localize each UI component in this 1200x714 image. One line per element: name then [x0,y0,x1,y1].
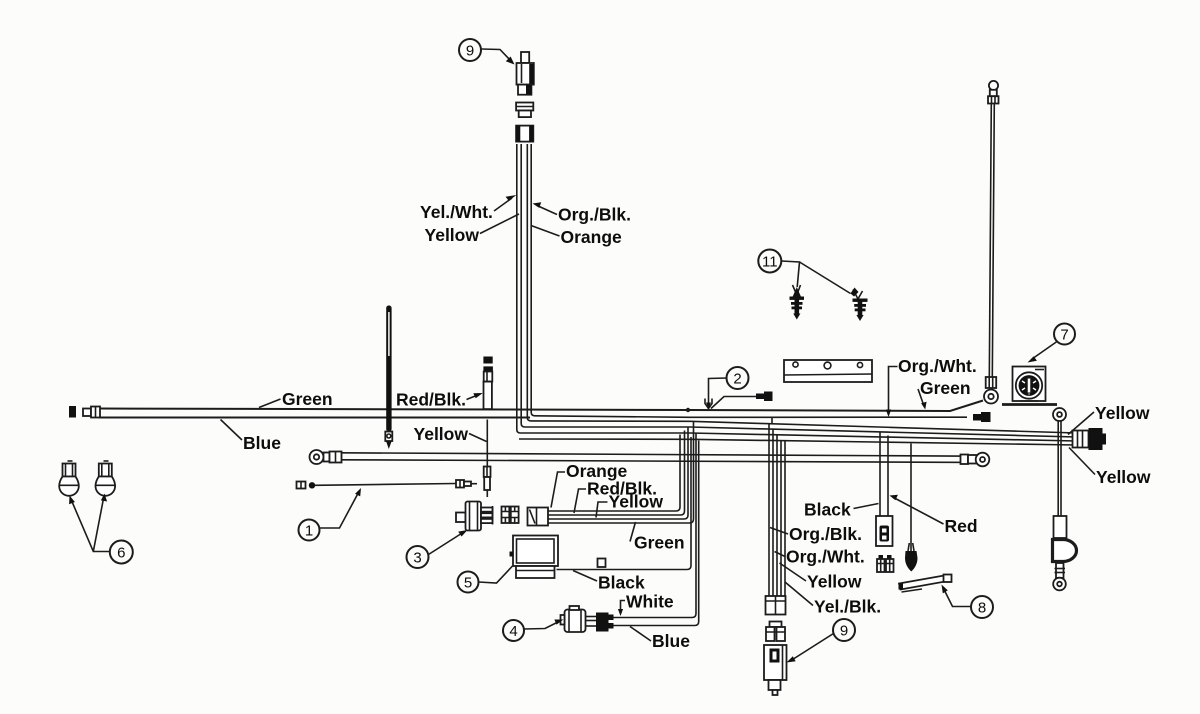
svg-text:Blue: Blue [243,433,281,453]
svg-text:Org./Blk.: Org./Blk. [558,205,631,225]
svg-text:3: 3 [413,550,421,567]
svg-text:6: 6 [117,545,125,562]
svg-text:8: 8 [978,600,986,617]
svg-text:Yellow: Yellow [1096,467,1151,487]
svg-text:Black: Black [598,573,645,593]
svg-text:Yellow: Yellow [807,572,862,592]
svg-text:4: 4 [509,623,517,640]
svg-text:Red: Red [945,516,978,536]
svg-text:11: 11 [762,254,778,271]
svg-text:9: 9 [840,623,848,640]
svg-text:Black: Black [804,500,851,520]
svg-text:Org./Wht.: Org./Wht. [786,547,865,567]
svg-text:7: 7 [1060,327,1068,344]
svg-text:9: 9 [466,43,474,60]
svg-text:1: 1 [305,523,313,540]
svg-text:Yellow: Yellow [414,424,469,444]
svg-text:Green: Green [634,533,685,553]
svg-text:Green: Green [282,389,333,409]
svg-text:Red/Blk.: Red/Blk. [396,390,466,410]
svg-text:2: 2 [733,371,741,388]
svg-text:Yel./Wht.: Yel./Wht. [420,202,493,222]
svg-text:Green: Green [920,378,971,398]
svg-text:White: White [626,592,674,612]
svg-text:Org./Blk.: Org./Blk. [789,524,862,544]
svg-text:Blue: Blue [652,631,690,651]
svg-text:Org./Wht.: Org./Wht. [898,356,977,376]
svg-text:Orange: Orange [561,227,623,247]
svg-text:5: 5 [464,575,472,592]
svg-text:Yellow: Yellow [609,492,664,512]
svg-text:Yellow: Yellow [425,225,480,245]
svg-text:Yellow: Yellow [1095,403,1150,423]
svg-text:Yel./Blk.: Yel./Blk. [814,597,881,617]
